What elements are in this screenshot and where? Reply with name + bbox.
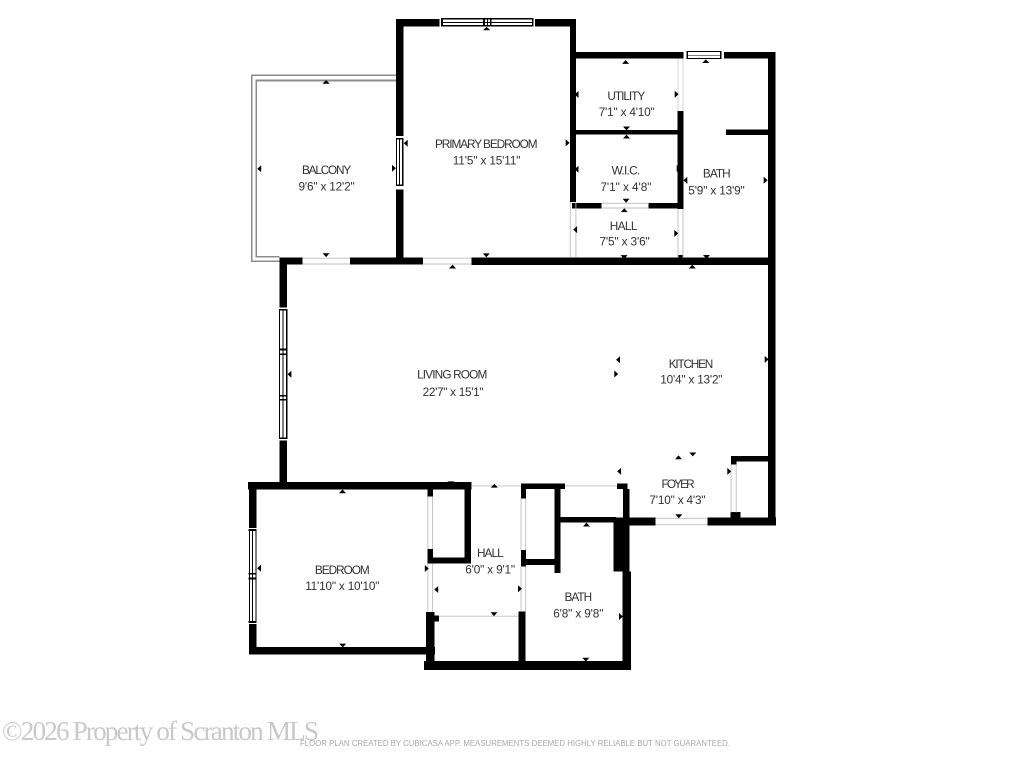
svg-text:7'1" x 4'8": 7'1" x 4'8" bbox=[600, 180, 651, 194]
svg-text:BALCONY: BALCONY bbox=[302, 163, 351, 177]
svg-text:©2026 Property of Scranton MLS: ©2026 Property of Scranton MLS bbox=[2, 716, 319, 746]
svg-text:7'5" x 3'6": 7'5" x 3'6" bbox=[600, 235, 650, 249]
svg-text:6'8" x 9'8": 6'8" x 9'8" bbox=[553, 607, 603, 621]
svg-text:10'4" x 13'2": 10'4" x 13'2" bbox=[660, 373, 722, 387]
svg-text:HALL: HALL bbox=[610, 219, 638, 233]
svg-text:9'6" x 12'2": 9'6" x 12'2" bbox=[299, 179, 355, 193]
svg-text:11'5" x 15'11": 11'5" x 15'11" bbox=[453, 153, 521, 167]
svg-text:LIVING ROOM: LIVING ROOM bbox=[417, 368, 487, 382]
svg-text:7'10" x 4'3": 7'10" x 4'3" bbox=[649, 493, 705, 507]
svg-text:5'9" x 13'9": 5'9" x 13'9" bbox=[688, 183, 744, 197]
svg-text:UTILITY: UTILITY bbox=[607, 89, 645, 103]
svg-text:KITCHEN: KITCHEN bbox=[669, 357, 714, 371]
svg-text:BATH: BATH bbox=[564, 590, 592, 604]
svg-text:HALL: HALL bbox=[477, 546, 504, 560]
svg-text:22'7" x 15'1": 22'7" x 15'1" bbox=[423, 385, 484, 399]
svg-text:6'0" x 9'1": 6'0" x 9'1" bbox=[465, 563, 515, 577]
svg-text:FLOOR PLAN CREATED BY CUBICASA: FLOOR PLAN CREATED BY CUBICASA APP. MEAS… bbox=[300, 739, 730, 748]
svg-text:PRIMARY BEDROOM: PRIMARY BEDROOM bbox=[435, 137, 538, 151]
svg-text:7'1" x 4'10": 7'1" x 4'10" bbox=[599, 105, 655, 119]
svg-text:BEDROOM: BEDROOM bbox=[315, 563, 370, 577]
svg-text:BATH: BATH bbox=[703, 167, 731, 181]
svg-text:W.I.C.: W.I.C. bbox=[612, 164, 641, 178]
svg-text:FOYER: FOYER bbox=[662, 477, 695, 491]
svg-text:11'10" x 10'10": 11'10" x 10'10" bbox=[305, 579, 379, 593]
